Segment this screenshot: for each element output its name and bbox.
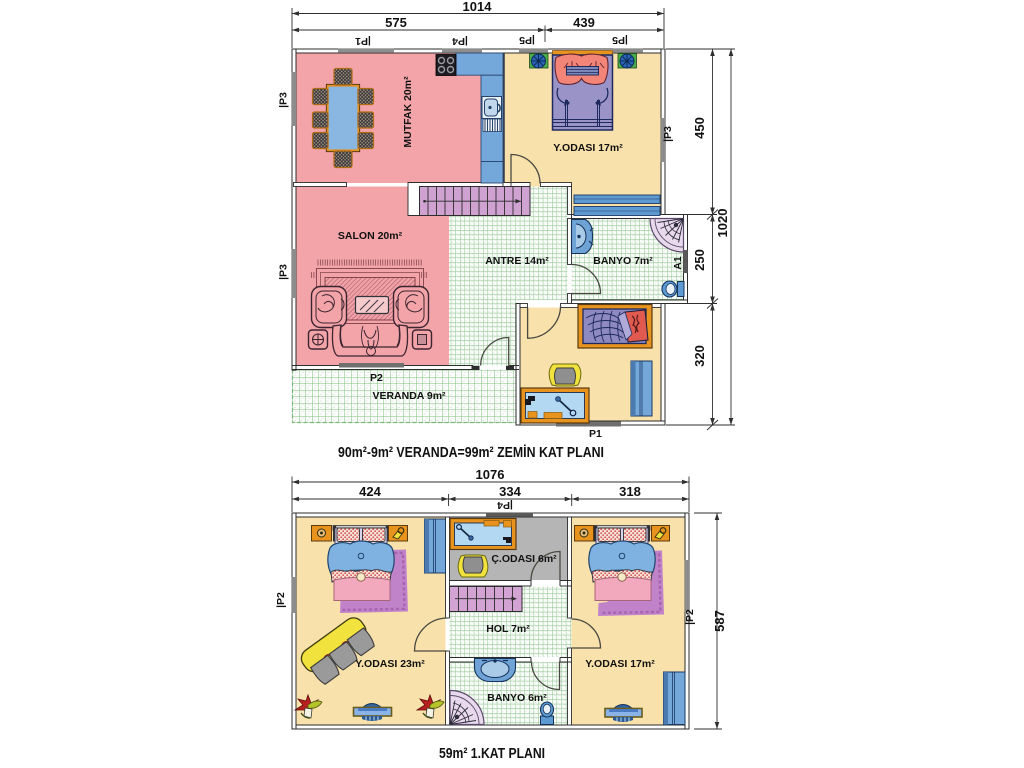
svg-text:A1: A1 <box>672 256 684 270</box>
svg-text:VERANDA 9m²: VERANDA 9m² <box>372 390 446 402</box>
svg-text:P1: P1 <box>589 428 602 440</box>
svg-text:Y.ODASI 23m²: Y.ODASI 23m² <box>355 658 425 670</box>
svg-text:90m²-9m² VERANDA=99m² ZEMİN KA: 90m²-9m² VERANDA=99m² ZEMİN KAT PLANI <box>338 444 604 461</box>
svg-text:|P4: |P4 <box>497 499 513 511</box>
svg-text:450: 450 <box>692 117 707 139</box>
svg-text:Ç.ODASI 6m²: Ç.ODASI 6m² <box>491 553 557 565</box>
svg-text:|P3: |P3 <box>662 126 674 142</box>
svg-text:|P5: |P5 <box>519 34 535 46</box>
svg-text:|P2: |P2 <box>275 592 287 608</box>
svg-text:|P3: |P3 <box>278 264 290 280</box>
svg-text:59m² 1.KAT PLANI: 59m² 1.KAT PLANI <box>439 745 545 762</box>
svg-text:|P1: |P1 <box>355 35 371 47</box>
svg-text:575: 575 <box>385 15 407 30</box>
svg-text:250: 250 <box>692 249 707 271</box>
svg-text:ANTRE 14m²: ANTRE 14m² <box>485 255 549 267</box>
svg-text:320: 320 <box>692 345 707 367</box>
svg-text:|P5: |P5 <box>612 34 628 46</box>
svg-text:1020: 1020 <box>715 209 730 238</box>
svg-text:334: 334 <box>499 484 521 499</box>
svg-text:439: 439 <box>573 15 595 30</box>
svg-text:Y.ODASI 17m²: Y.ODASI 17m² <box>553 142 623 154</box>
svg-text:|P2: |P2 <box>684 609 696 625</box>
svg-text:1076: 1076 <box>476 467 505 482</box>
svg-text:HOL 7m²: HOL 7m² <box>486 623 530 635</box>
svg-text:BANYO 6m²: BANYO 6m² <box>487 692 547 704</box>
svg-text:318: 318 <box>619 484 641 499</box>
svg-text:SALON 20m²: SALON 20m² <box>338 230 403 242</box>
svg-text:MUTFAK 20m²: MUTFAK 20m² <box>402 76 414 148</box>
svg-text:424: 424 <box>359 484 381 499</box>
svg-text:|P4: |P4 <box>452 35 468 47</box>
svg-text:|P3: |P3 <box>278 92 290 108</box>
svg-text:BANYO 7m²: BANYO 7m² <box>593 255 653 267</box>
svg-text:Y.ODASI 17m²: Y.ODASI 17m² <box>585 658 655 670</box>
svg-text:1014: 1014 <box>463 0 493 14</box>
svg-text:587: 587 <box>712 610 727 632</box>
svg-text:P2: P2 <box>370 372 383 384</box>
